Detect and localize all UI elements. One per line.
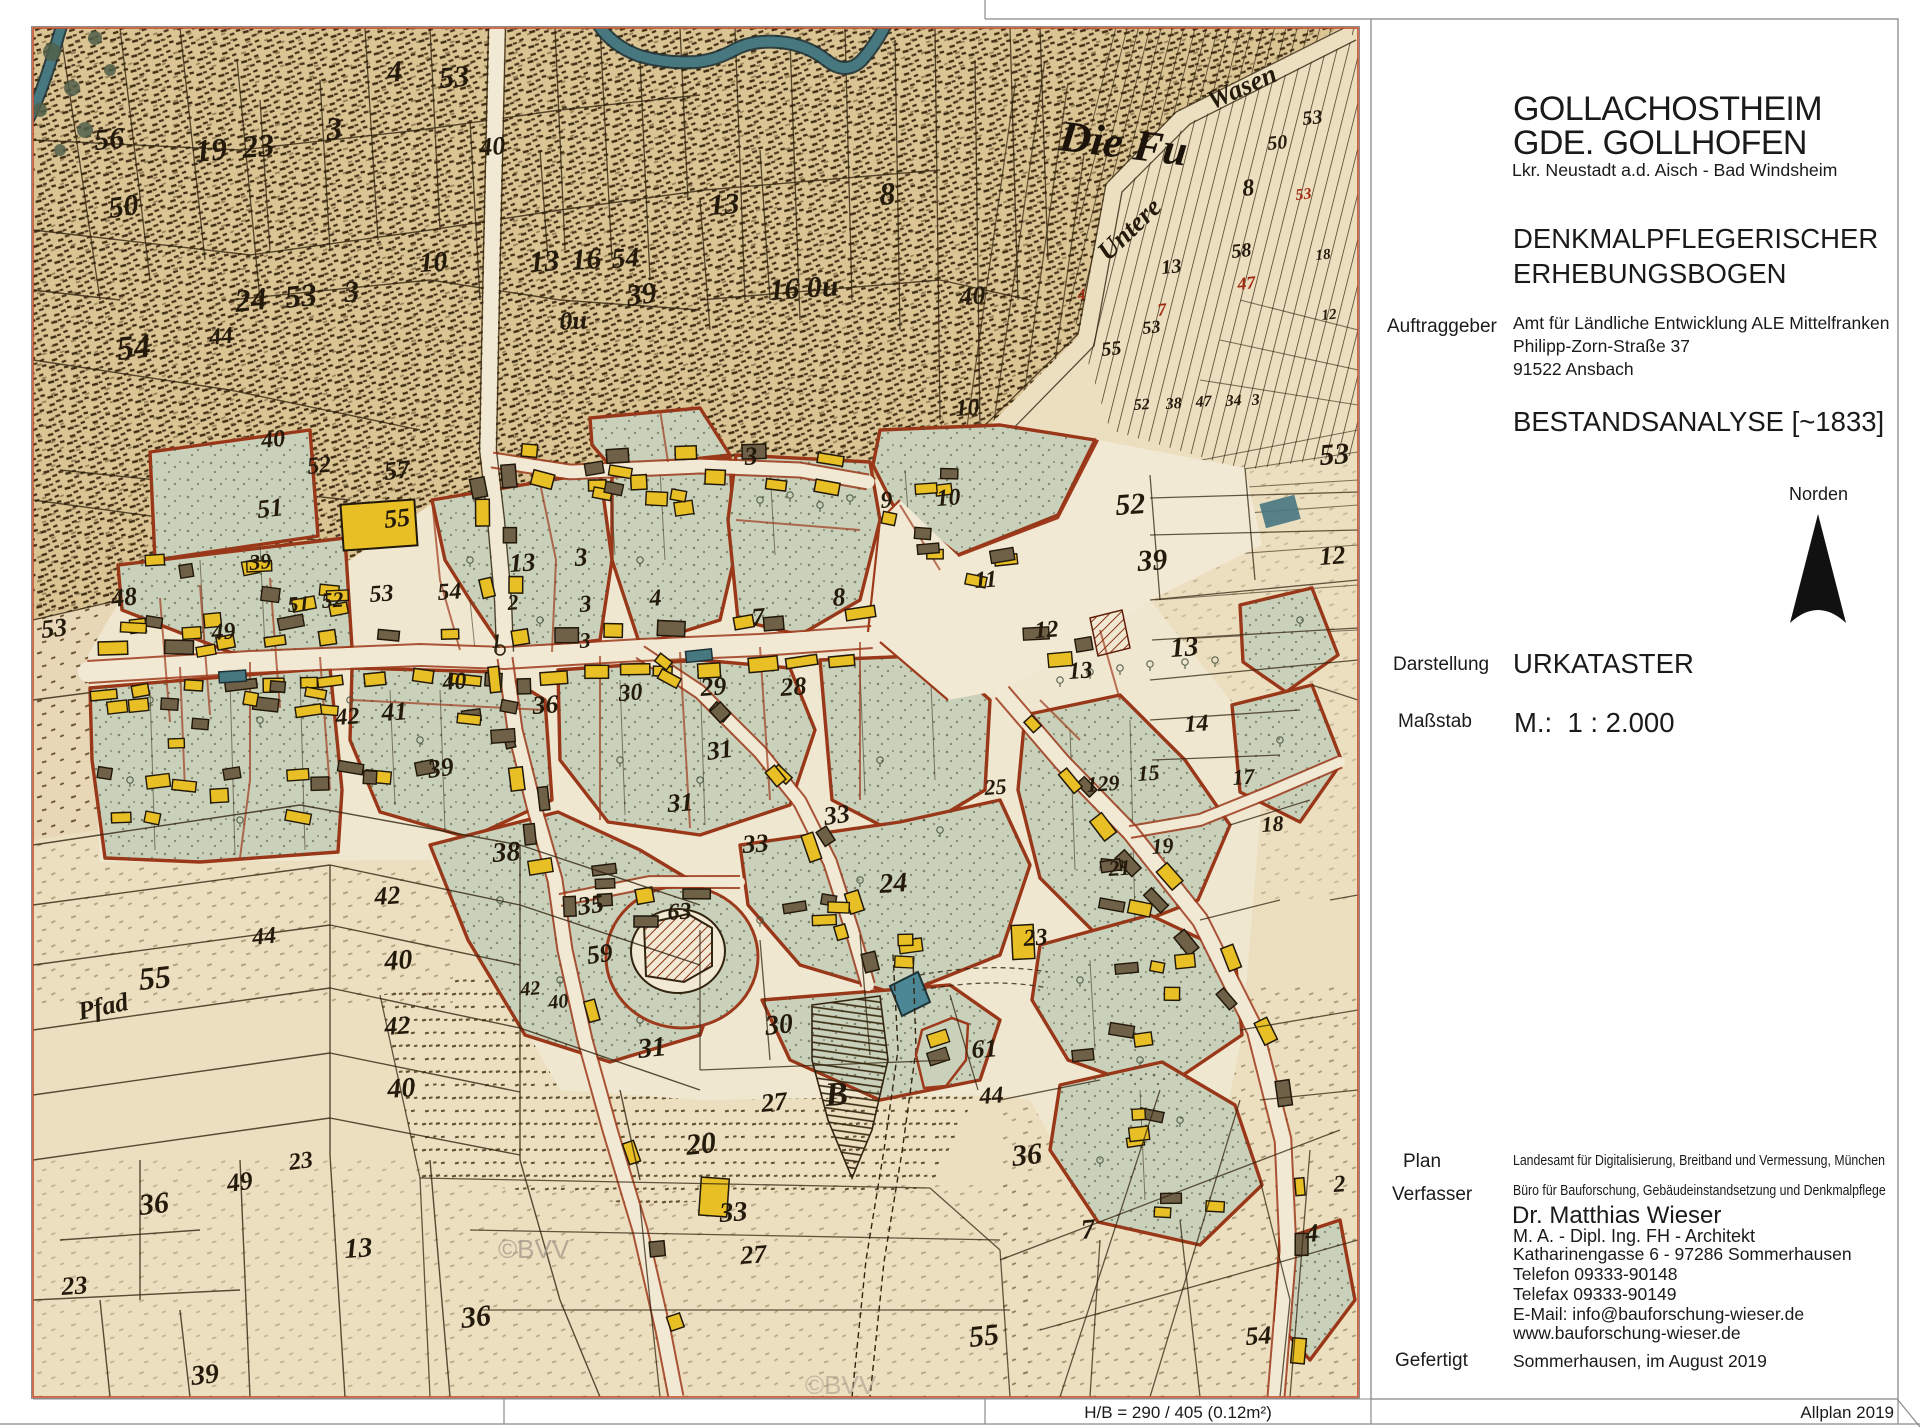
svg-text:©BVV: ©BVV — [805, 1370, 877, 1400]
svg-text:30: 30 — [762, 1008, 794, 1042]
svg-text:11: 11 — [974, 566, 998, 594]
svg-text:40: 40 — [477, 131, 506, 162]
svg-text:10: 10 — [955, 394, 981, 422]
svg-text:8: 8 — [831, 582, 846, 612]
svg-text:3: 3 — [578, 591, 593, 618]
svg-text:50: 50 — [106, 188, 140, 225]
svg-text:27: 27 — [738, 1239, 768, 1270]
svg-text:34: 34 — [1224, 392, 1242, 410]
svg-text:4: 4 — [1076, 286, 1087, 304]
svg-text:13: 13 — [508, 547, 536, 578]
svg-text:16: 16 — [570, 242, 602, 277]
svg-text:12: 12 — [1318, 540, 1346, 571]
svg-text:54: 54 — [437, 578, 463, 606]
svg-text:52: 52 — [1114, 487, 1146, 522]
svg-text:15: 15 — [1137, 760, 1161, 786]
svg-text:16 0u: 16 0u — [768, 269, 839, 307]
svg-text:42: 42 — [334, 703, 361, 731]
svg-text:38: 38 — [490, 836, 521, 869]
svg-text:23: 23 — [239, 126, 275, 165]
svg-text:52: 52 — [306, 452, 333, 480]
svg-text:49: 49 — [224, 1166, 255, 1198]
svg-text:48: 48 — [109, 581, 139, 613]
svg-text:54: 54 — [1244, 1320, 1272, 1351]
svg-text:36: 36 — [458, 1299, 492, 1335]
svg-text:50: 50 — [1266, 131, 1288, 155]
svg-text:3: 3 — [323, 110, 343, 147]
svg-text:40: 40 — [546, 990, 569, 1014]
svg-text:49: 49 — [210, 618, 237, 646]
svg-text:40: 40 — [441, 668, 468, 696]
svg-text:40: 40 — [259, 426, 287, 454]
svg-text:40: 40 — [957, 280, 986, 311]
svg-text:0u: 0u — [558, 305, 587, 336]
svg-text:36: 36 — [136, 1186, 170, 1222]
svg-text:3: 3 — [1250, 391, 1260, 409]
svg-text:23: 23 — [59, 1270, 88, 1301]
svg-text:40: 40 — [385, 1072, 416, 1105]
svg-text:30: 30 — [617, 679, 644, 707]
svg-text:27: 27 — [759, 1086, 790, 1118]
svg-text:53: 53 — [438, 59, 471, 94]
svg-text:42: 42 — [382, 1010, 411, 1041]
svg-text:8: 8 — [878, 175, 896, 212]
svg-text:13: 13 — [528, 244, 560, 279]
svg-text:28: 28 — [778, 671, 807, 702]
svg-text:20: 20 — [683, 1126, 717, 1162]
svg-text:19: 19 — [193, 130, 228, 169]
svg-text:53: 53 — [1141, 316, 1161, 338]
svg-text:4: 4 — [648, 585, 663, 612]
svg-text:B: B — [823, 1075, 849, 1114]
svg-text:53: 53 — [1301, 106, 1323, 130]
svg-text:53: 53 — [40, 612, 69, 644]
svg-text:18: 18 — [1261, 811, 1285, 837]
svg-text:10: 10 — [418, 246, 448, 279]
svg-text:10: 10 — [936, 484, 962, 512]
svg-text:33: 33 — [740, 828, 769, 859]
svg-text:54: 54 — [610, 242, 640, 275]
svg-text:25: 25 — [983, 774, 1008, 801]
svg-text:39: 39 — [623, 276, 658, 313]
svg-text:47: 47 — [1194, 393, 1213, 411]
svg-text:36: 36 — [530, 689, 559, 720]
svg-text:13: 13 — [708, 187, 740, 222]
svg-text:57: 57 — [383, 454, 413, 486]
svg-text:4: 4 — [1303, 1218, 1319, 1248]
svg-text:3: 3 — [342, 275, 361, 309]
svg-text:29: 29 — [698, 671, 727, 702]
svg-text:52: 52 — [1133, 396, 1150, 414]
svg-text:59: 59 — [585, 938, 615, 970]
svg-text:24: 24 — [877, 867, 908, 900]
svg-text:31: 31 — [665, 787, 694, 818]
svg-text:23: 23 — [286, 1147, 314, 1176]
svg-text:33: 33 — [717, 1196, 748, 1229]
svg-text:56: 56 — [93, 121, 126, 156]
svg-text:3: 3 — [572, 542, 588, 572]
svg-text:2: 2 — [506, 589, 520, 615]
svg-text:53: 53 — [1295, 185, 1313, 204]
svg-text:55: 55 — [137, 958, 173, 997]
svg-text:3: 3 — [578, 627, 592, 653]
svg-text:51: 51 — [256, 492, 285, 524]
svg-text:40: 40 — [382, 944, 413, 977]
svg-text:55: 55 — [383, 502, 412, 534]
svg-text:53: 53 — [369, 580, 395, 608]
svg-text:55: 55 — [967, 1318, 1000, 1354]
svg-text:21: 21 — [1107, 855, 1132, 882]
svg-text:39: 39 — [425, 752, 456, 784]
svg-text:19: 19 — [1151, 833, 1175, 859]
svg-text:39: 39 — [188, 1358, 220, 1392]
svg-text:14: 14 — [1184, 710, 1210, 738]
svg-text:41: 41 — [379, 696, 408, 727]
svg-text:12: 12 — [1034, 616, 1060, 644]
svg-text:12: 12 — [1321, 306, 1338, 324]
svg-text:13: 13 — [1160, 255, 1182, 279]
svg-text:4: 4 — [385, 55, 404, 89]
svg-text:2: 2 — [1332, 1171, 1347, 1198]
svg-text:63: 63 — [667, 898, 693, 926]
svg-text:36: 36 — [1009, 1137, 1043, 1173]
svg-text:44: 44 — [250, 923, 278, 951]
svg-text:35: 35 — [575, 889, 606, 921]
svg-text:13: 13 — [1169, 631, 1199, 664]
svg-text:33: 33 — [821, 799, 852, 831]
svg-text:9: 9 — [880, 487, 894, 514]
svg-text:39: 39 — [247, 548, 272, 575]
svg-text:42: 42 — [518, 977, 541, 1001]
svg-text:51: 51 — [287, 591, 311, 617]
svg-text:13: 13 — [1068, 657, 1094, 685]
svg-text:47: 47 — [1235, 272, 1257, 294]
svg-text:13: 13 — [343, 1232, 373, 1265]
svg-text:61: 61 — [970, 1033, 998, 1064]
svg-text:54: 54 — [115, 328, 153, 368]
svg-text:53: 53 — [1318, 437, 1350, 472]
svg-text:55: 55 — [1100, 337, 1122, 361]
svg-text:58: 58 — [1230, 239, 1252, 263]
svg-text:23: 23 — [1022, 924, 1049, 952]
svg-text:39: 39 — [1135, 543, 1168, 578]
svg-text:38: 38 — [1164, 395, 1182, 413]
svg-text:44: 44 — [978, 1082, 1005, 1110]
svg-text:3: 3 — [742, 441, 758, 471]
svg-text:129: 129 — [1086, 770, 1121, 797]
svg-text:31: 31 — [635, 1031, 667, 1065]
svg-text:©BVV: ©BVV — [498, 1234, 570, 1264]
svg-text:31: 31 — [704, 734, 735, 766]
svg-text:1: 1 — [491, 630, 503, 653]
svg-text:18: 18 — [1315, 246, 1332, 264]
svg-text:53: 53 — [283, 276, 319, 315]
svg-text:52: 52 — [321, 587, 345, 613]
svg-text:17: 17 — [1232, 763, 1257, 790]
svg-text:42: 42 — [372, 880, 401, 911]
svg-text:44: 44 — [207, 323, 235, 351]
svg-text:24: 24 — [232, 280, 269, 319]
